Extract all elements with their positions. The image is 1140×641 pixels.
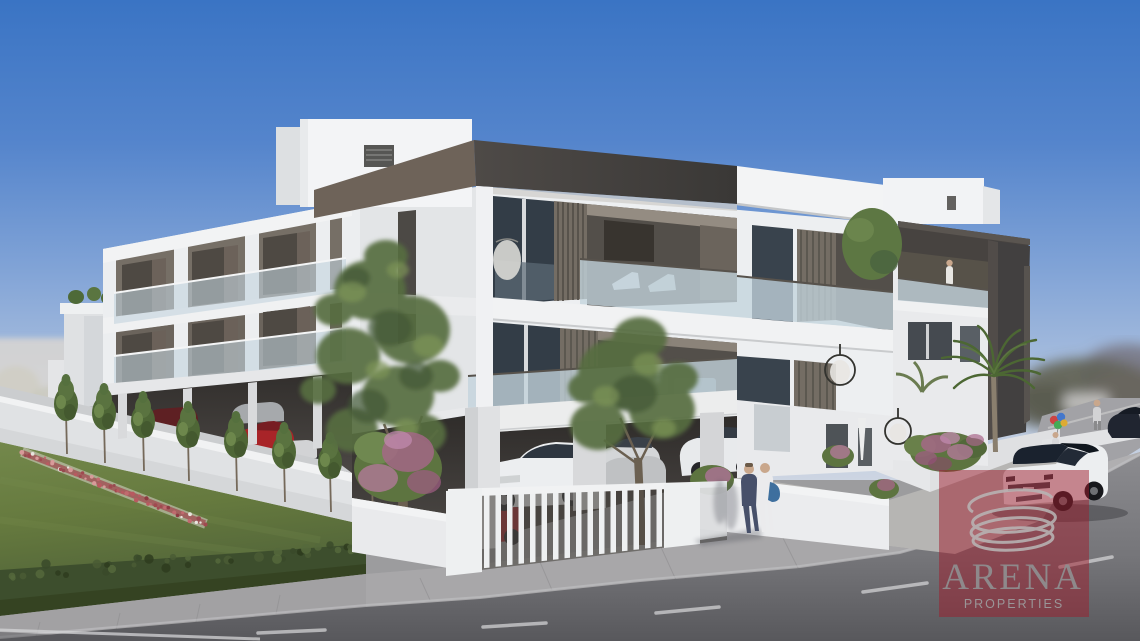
svg-text:PROPERTIES: PROPERTIES — [964, 597, 1064, 611]
svg-text:ARENA: ARENA — [942, 557, 1083, 598]
